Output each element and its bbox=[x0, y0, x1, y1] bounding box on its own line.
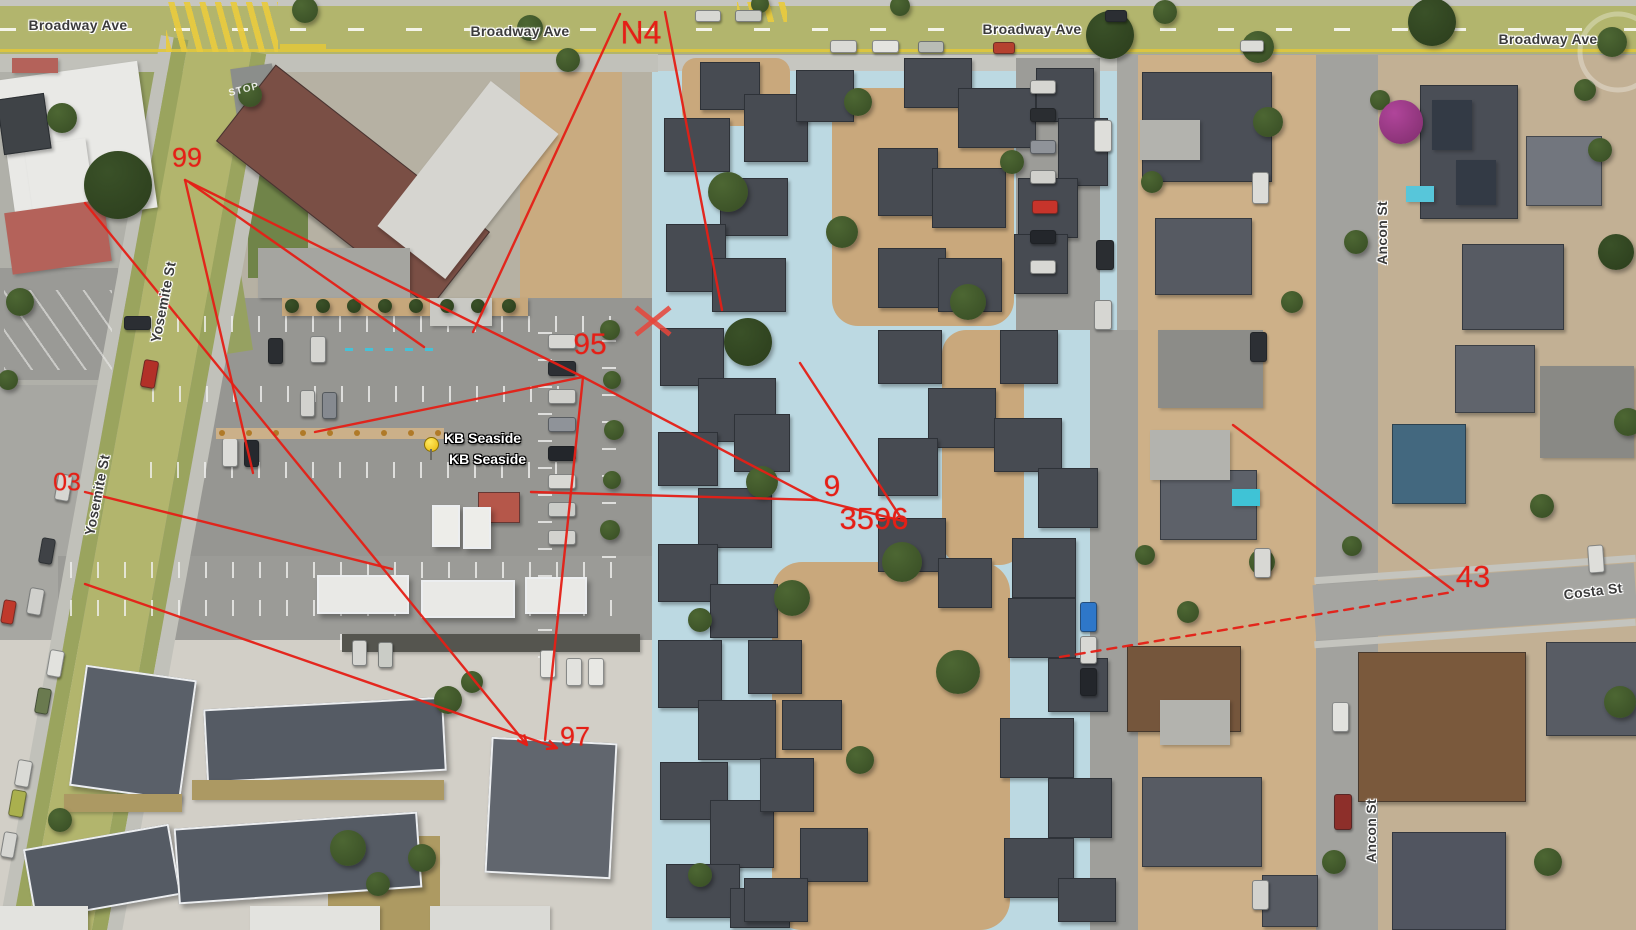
car bbox=[548, 417, 576, 432]
car bbox=[378, 642, 393, 668]
condo-roof bbox=[658, 544, 718, 602]
condo-roof bbox=[1048, 778, 1112, 838]
car bbox=[1030, 230, 1056, 244]
building bbox=[432, 505, 460, 547]
car bbox=[300, 390, 315, 417]
building bbox=[64, 794, 182, 812]
road-marking bbox=[150, 316, 630, 332]
road-marking bbox=[166, 2, 278, 52]
condo-roof bbox=[760, 758, 814, 812]
tree bbox=[330, 830, 366, 866]
car bbox=[1030, 260, 1056, 274]
tree bbox=[1153, 0, 1177, 24]
building bbox=[0, 93, 52, 155]
car bbox=[244, 440, 259, 467]
condo-roof bbox=[658, 640, 722, 708]
street-label: Broadway Ave bbox=[28, 17, 127, 33]
tree bbox=[434, 686, 462, 714]
placemark-label: KB Seaside bbox=[444, 430, 521, 446]
tree bbox=[1177, 601, 1199, 623]
kb-seaside-pin[interactable] bbox=[424, 437, 438, 461]
annotation-label-9: 9 bbox=[824, 470, 841, 504]
condo-roof bbox=[932, 168, 1006, 228]
blue-curb-dash bbox=[405, 348, 413, 351]
condo-roof bbox=[928, 388, 996, 448]
car bbox=[0, 599, 17, 625]
building bbox=[1262, 875, 1318, 927]
street-label: Ancon St bbox=[1363, 799, 1379, 863]
bollard-dot bbox=[219, 430, 225, 436]
tree bbox=[316, 299, 330, 313]
tree bbox=[936, 650, 980, 694]
building bbox=[12, 58, 58, 73]
building bbox=[525, 577, 587, 614]
street-label: Ancon St bbox=[1374, 201, 1390, 265]
car bbox=[830, 40, 857, 53]
bollard-dot bbox=[300, 430, 306, 436]
ground-region bbox=[520, 58, 622, 316]
car bbox=[993, 42, 1015, 54]
car bbox=[588, 658, 604, 686]
tree bbox=[1281, 291, 1303, 313]
street-label: Broadway Ave bbox=[982, 21, 1081, 37]
tree bbox=[1574, 79, 1596, 101]
tree bbox=[688, 863, 712, 887]
building bbox=[1406, 186, 1434, 202]
annotation-label-N4: N4 bbox=[621, 15, 662, 52]
tree bbox=[603, 371, 621, 389]
car bbox=[1080, 602, 1097, 632]
building bbox=[1392, 832, 1506, 930]
tree bbox=[285, 299, 299, 313]
tree bbox=[471, 299, 485, 313]
ground-region bbox=[1090, 330, 1138, 930]
tree bbox=[378, 299, 392, 313]
tree bbox=[604, 420, 624, 440]
building bbox=[1158, 330, 1263, 408]
condo-roof bbox=[744, 878, 808, 922]
car bbox=[1250, 332, 1267, 362]
car bbox=[1030, 108, 1056, 122]
tree bbox=[1530, 494, 1554, 518]
car bbox=[1252, 172, 1269, 204]
tree bbox=[408, 844, 436, 872]
car bbox=[918, 41, 944, 53]
car bbox=[548, 530, 576, 545]
tree bbox=[1135, 545, 1155, 565]
tree bbox=[950, 284, 986, 320]
car bbox=[1030, 80, 1056, 94]
condo-roof bbox=[878, 330, 942, 384]
tree bbox=[409, 299, 423, 313]
tree bbox=[1000, 150, 1024, 174]
building bbox=[250, 906, 380, 930]
tree bbox=[600, 520, 620, 540]
tree bbox=[1597, 27, 1627, 57]
car bbox=[548, 334, 576, 349]
tree bbox=[688, 608, 712, 632]
tree bbox=[440, 299, 454, 313]
annotation-label-97: 97 bbox=[560, 722, 590, 753]
tree bbox=[366, 872, 390, 896]
condo-roof bbox=[748, 640, 802, 694]
car bbox=[1080, 636, 1097, 664]
annotation-label-43: 43 bbox=[1456, 559, 1490, 595]
tree bbox=[461, 671, 483, 693]
road-marking bbox=[280, 44, 326, 49]
building bbox=[69, 665, 197, 801]
car bbox=[352, 640, 367, 666]
magenta-tree bbox=[1379, 100, 1423, 144]
tree bbox=[6, 288, 34, 316]
tree bbox=[1342, 536, 1362, 556]
tree bbox=[826, 216, 858, 248]
building bbox=[1150, 430, 1230, 480]
building bbox=[1392, 424, 1466, 504]
car bbox=[1105, 10, 1127, 22]
tree bbox=[347, 299, 361, 313]
tree bbox=[774, 580, 810, 616]
car bbox=[1240, 40, 1264, 52]
car bbox=[26, 587, 45, 616]
car bbox=[1587, 544, 1605, 573]
bollard-dot bbox=[327, 430, 333, 436]
car bbox=[548, 446, 576, 461]
car bbox=[1332, 702, 1349, 732]
bollard-dot bbox=[381, 430, 387, 436]
car bbox=[540, 650, 556, 678]
condo-roof bbox=[710, 584, 778, 638]
satellite-map[interactable]: Broadway AveBroadway AveBroadway AveBroa… bbox=[0, 0, 1636, 930]
car bbox=[872, 40, 899, 53]
tree bbox=[1408, 0, 1456, 46]
building bbox=[1432, 100, 1472, 150]
blue-curb-dash bbox=[345, 348, 353, 351]
tree bbox=[48, 808, 72, 832]
condo-roof bbox=[712, 258, 786, 312]
building bbox=[1456, 160, 1496, 205]
blue-curb-dash bbox=[425, 348, 433, 351]
car bbox=[548, 361, 576, 376]
street-label: Broadway Ave bbox=[470, 23, 569, 39]
tree bbox=[84, 151, 152, 219]
tree bbox=[1344, 230, 1368, 254]
annotation-label-95: 95 bbox=[573, 328, 606, 362]
tree bbox=[502, 299, 516, 313]
building bbox=[0, 906, 88, 930]
building bbox=[485, 737, 618, 879]
condo-roof bbox=[1000, 718, 1074, 778]
building bbox=[1160, 700, 1230, 745]
tree bbox=[47, 103, 77, 133]
tree bbox=[1588, 138, 1612, 162]
car bbox=[1334, 794, 1352, 830]
car bbox=[38, 537, 56, 565]
car bbox=[322, 392, 337, 419]
car bbox=[1030, 140, 1056, 154]
condo-roof bbox=[1048, 658, 1108, 712]
tree bbox=[1253, 107, 1283, 137]
condo-roof bbox=[734, 414, 790, 472]
tree bbox=[1598, 234, 1634, 270]
car bbox=[548, 502, 576, 517]
tree bbox=[1322, 850, 1346, 874]
building bbox=[1358, 652, 1526, 802]
condo-roof bbox=[1038, 468, 1098, 528]
car bbox=[735, 10, 762, 22]
tree bbox=[746, 466, 778, 498]
annotation-label-03: 03 bbox=[53, 469, 81, 498]
building bbox=[1462, 244, 1564, 330]
bollard-dot bbox=[435, 430, 441, 436]
tree bbox=[556, 48, 580, 72]
car bbox=[1030, 170, 1056, 184]
building bbox=[1232, 489, 1260, 506]
tree bbox=[0, 370, 18, 390]
annotation-label-99: 99 bbox=[172, 143, 202, 174]
building bbox=[1142, 777, 1262, 867]
car bbox=[566, 658, 582, 686]
bollard-dot bbox=[246, 430, 252, 436]
tree bbox=[1614, 408, 1636, 436]
blue-curb-dash bbox=[385, 348, 393, 351]
building bbox=[317, 575, 409, 614]
condo-roof bbox=[1008, 598, 1076, 658]
car bbox=[1096, 240, 1114, 270]
tree bbox=[603, 471, 621, 489]
tree bbox=[882, 542, 922, 582]
screenshot-root: Broadway AveBroadway AveBroadway AveBroa… bbox=[0, 0, 1636, 930]
tree bbox=[724, 318, 772, 366]
condo-roof bbox=[958, 88, 1036, 148]
car bbox=[1080, 668, 1097, 696]
condo-roof bbox=[938, 558, 992, 608]
car bbox=[222, 438, 238, 467]
road-marking bbox=[152, 386, 572, 402]
condo-roof bbox=[878, 438, 938, 496]
placemark-label: KB Seaside bbox=[449, 451, 526, 467]
condo-roof bbox=[1058, 878, 1116, 922]
building bbox=[421, 580, 515, 618]
condo-roof bbox=[664, 118, 730, 172]
building bbox=[1140, 120, 1200, 160]
condo-roof bbox=[1012, 538, 1076, 598]
condo-roof bbox=[782, 700, 842, 750]
tree bbox=[844, 88, 872, 116]
bollard-dot bbox=[354, 430, 360, 436]
car bbox=[1094, 300, 1112, 330]
building bbox=[1455, 345, 1535, 413]
car bbox=[548, 474, 576, 489]
car bbox=[1094, 120, 1112, 152]
building bbox=[463, 507, 491, 549]
tree bbox=[708, 172, 748, 212]
tree bbox=[846, 746, 874, 774]
car bbox=[695, 10, 721, 22]
blue-curb-dash bbox=[365, 348, 373, 351]
condo-roof bbox=[878, 148, 938, 216]
tree bbox=[1141, 171, 1163, 193]
car bbox=[310, 336, 326, 363]
building bbox=[1155, 218, 1252, 295]
tree bbox=[1604, 686, 1636, 718]
car bbox=[124, 316, 151, 330]
car bbox=[1252, 880, 1269, 910]
condo-roof bbox=[658, 432, 718, 486]
condo-roof bbox=[878, 248, 946, 308]
building bbox=[258, 248, 410, 298]
pushpin-stem-icon bbox=[430, 449, 432, 460]
bollard-dot bbox=[408, 430, 414, 436]
car bbox=[548, 389, 576, 404]
street-label: Broadway Ave bbox=[1498, 31, 1597, 47]
car bbox=[1032, 200, 1058, 214]
condo-roof bbox=[800, 828, 868, 882]
condo-roof bbox=[994, 418, 1062, 472]
tree bbox=[1534, 848, 1562, 876]
car bbox=[1254, 548, 1271, 578]
building bbox=[203, 697, 447, 783]
condo-roof bbox=[698, 700, 776, 760]
building bbox=[430, 906, 550, 930]
bollard-dot bbox=[273, 430, 279, 436]
annotation-label-3596: 3596 bbox=[840, 501, 909, 537]
car bbox=[268, 338, 283, 364]
condo-roof bbox=[1000, 330, 1058, 384]
building bbox=[192, 780, 444, 800]
